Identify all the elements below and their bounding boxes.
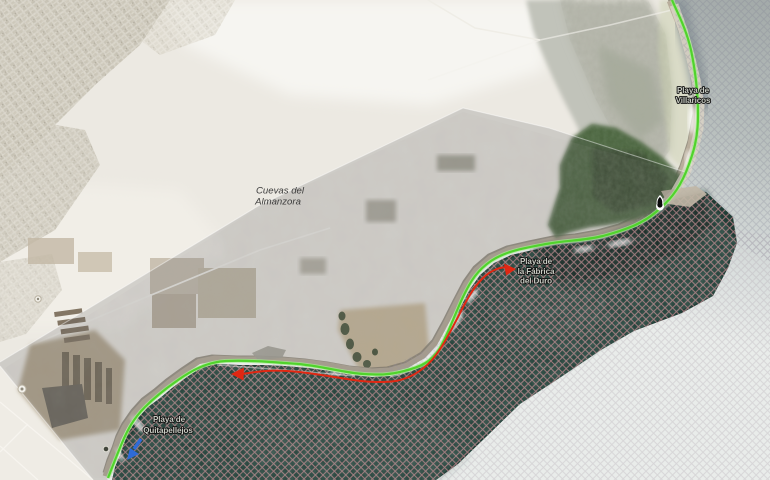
svg-text:del Duro: del Duro [520,277,552,286]
svg-text:Cuevas del: Cuevas del [256,186,305,197]
svg-text:Villaricos: Villaricos [676,96,711,105]
svg-text:la Fábrica: la Fábrica [518,267,555,276]
svg-text:Playa de: Playa de [677,86,710,95]
svg-text:Almanzora: Almanzora [254,197,301,208]
svg-text:Quitapellejos: Quitapellejos [143,426,193,435]
svg-text:Playa de: Playa de [153,415,186,424]
svg-text:Playa de: Playa de [520,257,553,266]
